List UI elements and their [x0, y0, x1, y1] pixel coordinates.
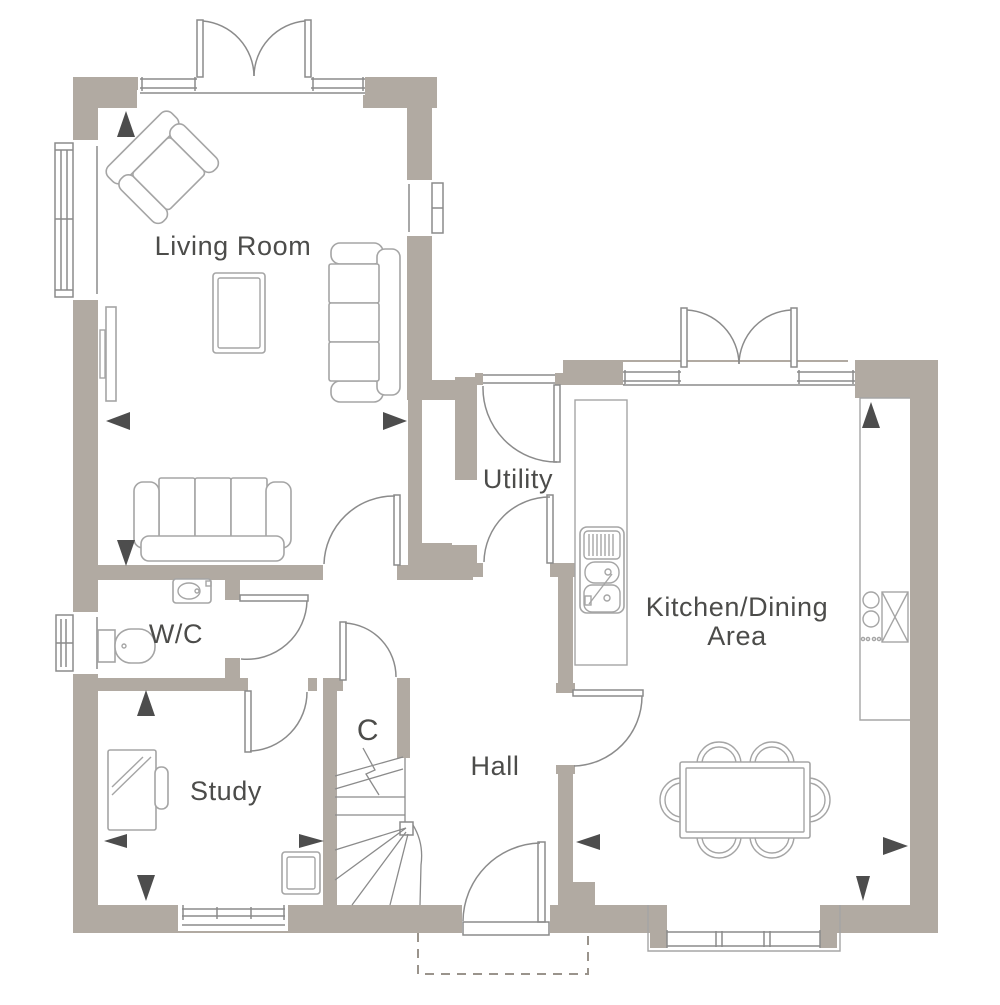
wall-segment [910, 360, 938, 933]
porch-outline [418, 933, 588, 974]
door-swing [687, 310, 739, 364]
dining-chair [750, 836, 794, 858]
door-kitchen [573, 690, 643, 766]
door-jamb [397, 678, 410, 691]
hob-ring [863, 611, 879, 627]
door-opening [138, 75, 365, 95]
door-swing [574, 696, 642, 766]
stair-newel-post [400, 822, 413, 835]
door-swing [463, 843, 540, 921]
bay-window-kitchen [648, 905, 840, 951]
sofa-back [141, 536, 284, 561]
armchair [103, 108, 222, 227]
room-label-living-room: Living Room [155, 231, 312, 261]
sofa-back [377, 249, 400, 395]
sink-unit [580, 527, 624, 613]
window-living-room-right [405, 180, 445, 236]
french-doors-kitchen [623, 308, 855, 385]
hob-knob [866, 637, 869, 640]
kitchen-counter-right [860, 398, 910, 720]
sofa-arm [331, 381, 383, 402]
door-leaf [791, 308, 797, 367]
door-swing [324, 496, 395, 564]
side-table [282, 852, 320, 894]
dining-chair [660, 778, 682, 822]
door-study [245, 691, 307, 752]
arrow-down-icon [137, 875, 155, 901]
desk-top [108, 750, 156, 830]
dining-chair [750, 742, 794, 764]
basin [173, 579, 211, 603]
front-door [463, 842, 549, 935]
door-leaf [554, 385, 560, 462]
room-label-utility: Utility [483, 464, 553, 494]
dining-chair [808, 778, 830, 822]
wall-segment [397, 691, 410, 758]
sofa-seat [231, 478, 267, 538]
toilet-cistern [98, 630, 115, 662]
stairs [335, 748, 422, 905]
room-label-cupboard: C [357, 714, 379, 747]
door-leaf [305, 20, 311, 77]
door-swing [241, 601, 307, 659]
wall-segment [225, 578, 240, 600]
door-swing [739, 310, 791, 364]
sofa-second [134, 478, 291, 561]
arrow-right-icon [883, 837, 908, 855]
door-leaf [547, 495, 553, 563]
wall-segment [558, 565, 573, 687]
window-wc [52, 612, 98, 674]
door-jamb [475, 373, 483, 385]
door-leaf [240, 595, 308, 601]
oven [882, 592, 908, 642]
table-top [213, 273, 265, 353]
stair-break-line [363, 748, 379, 795]
room-label-hall: Hall [471, 751, 520, 781]
wall-segment [98, 678, 248, 691]
wall-segment [323, 905, 462, 933]
sofa [329, 243, 400, 402]
door-utility-back [483, 375, 560, 462]
door-swing [254, 21, 305, 76]
wall-segment [455, 377, 477, 480]
arrow-left-icon [576, 834, 600, 850]
furniture-study [108, 750, 320, 894]
door-leaf [340, 622, 346, 680]
room-label-kitchen-line1: Kitchen/Dining [646, 592, 829, 622]
door-leaf [394, 495, 400, 565]
sink-drainer-grooves [589, 534, 613, 556]
arrow-down-icon [856, 876, 870, 901]
arrow-down-icon [117, 540, 135, 566]
stair-winders [335, 828, 408, 905]
door-jamb [308, 678, 317, 691]
door-cupboard [340, 622, 396, 680]
hob-knob [877, 637, 880, 640]
bay-outline [648, 905, 840, 951]
tv-bracket [100, 330, 105, 378]
arrow-up-icon [862, 402, 880, 428]
window-study [178, 901, 288, 931]
desk-chair [155, 767, 168, 809]
coffee-table [213, 273, 265, 353]
door-sill [463, 922, 549, 935]
door-jamb [556, 683, 575, 693]
dining-chair [697, 742, 741, 764]
door-living-room [324, 495, 400, 565]
hob-knob [872, 637, 875, 640]
wall-segment [408, 400, 422, 565]
wall-segment [407, 90, 432, 182]
door-swing [250, 692, 307, 751]
wall-segment [558, 768, 573, 905]
sofa-seat [159, 478, 195, 538]
floor-plan-page: Living Room Utility Kitchen/Dining Area … [0, 0, 1000, 1000]
wall-segment [407, 233, 432, 400]
arrow-right-icon [383, 412, 407, 430]
doors [240, 375, 643, 935]
door-utility-inner [484, 495, 553, 563]
sofa-seat [329, 342, 379, 381]
sofa-seat [329, 303, 379, 342]
wall-segment [98, 565, 323, 580]
bay-stub [820, 930, 837, 948]
sofa-seat [195, 478, 231, 538]
room-label-kitchen-line2: Area [707, 621, 767, 651]
window-living-room-left [52, 140, 98, 300]
arrow-left-icon [104, 834, 127, 848]
door-swing [483, 386, 557, 462]
hob-knob [861, 637, 864, 640]
wall-segment [820, 905, 938, 933]
desk [108, 750, 168, 830]
wall-segment [563, 905, 667, 933]
sofa-seat [329, 264, 379, 303]
door-leaf [538, 842, 545, 922]
wall-segment [323, 678, 337, 905]
french-doors-living-room [138, 20, 365, 95]
door-swing [345, 623, 396, 677]
stair-outer-edge [413, 825, 422, 905]
wall-segment [563, 360, 625, 385]
sofa-arm [331, 243, 383, 264]
wall-segment [573, 882, 595, 905]
arrow-left-icon [106, 412, 130, 430]
toilet [98, 629, 155, 663]
room-label-study: Study [190, 776, 262, 806]
door-threshold [483, 375, 555, 383]
floor-plan-drawing: Living Room Utility Kitchen/Dining Area … [0, 0, 1000, 1000]
window-glazing [667, 930, 820, 948]
hob-ring [863, 592, 879, 608]
furniture-living-room [100, 108, 400, 561]
door-swing [484, 497, 550, 562]
hob [861, 592, 880, 641]
door-jamb [555, 373, 563, 385]
door-swing [203, 21, 254, 76]
dining-table [660, 742, 830, 858]
dining-chair [697, 836, 741, 858]
room-label-wc: W/C [149, 619, 203, 649]
oven-cross [882, 592, 908, 642]
door-leaf [573, 690, 643, 696]
door-leaf [197, 20, 203, 77]
tv-unit [100, 307, 116, 401]
door-wc [240, 595, 308, 659]
wall-segment [550, 905, 563, 933]
door-leaf [681, 308, 687, 367]
arrow-up-icon [117, 111, 135, 137]
arrow-up-icon [137, 690, 155, 716]
window-opening [52, 140, 98, 300]
stair-treads [335, 757, 405, 815]
tv-screen [106, 307, 116, 401]
wall-segment [452, 563, 483, 577]
bay-stub [650, 930, 667, 948]
arrow-right-icon [299, 834, 324, 848]
door-leaf [245, 691, 251, 752]
dining-table-top [680, 762, 810, 838]
kitchen-sink [580, 527, 624, 613]
